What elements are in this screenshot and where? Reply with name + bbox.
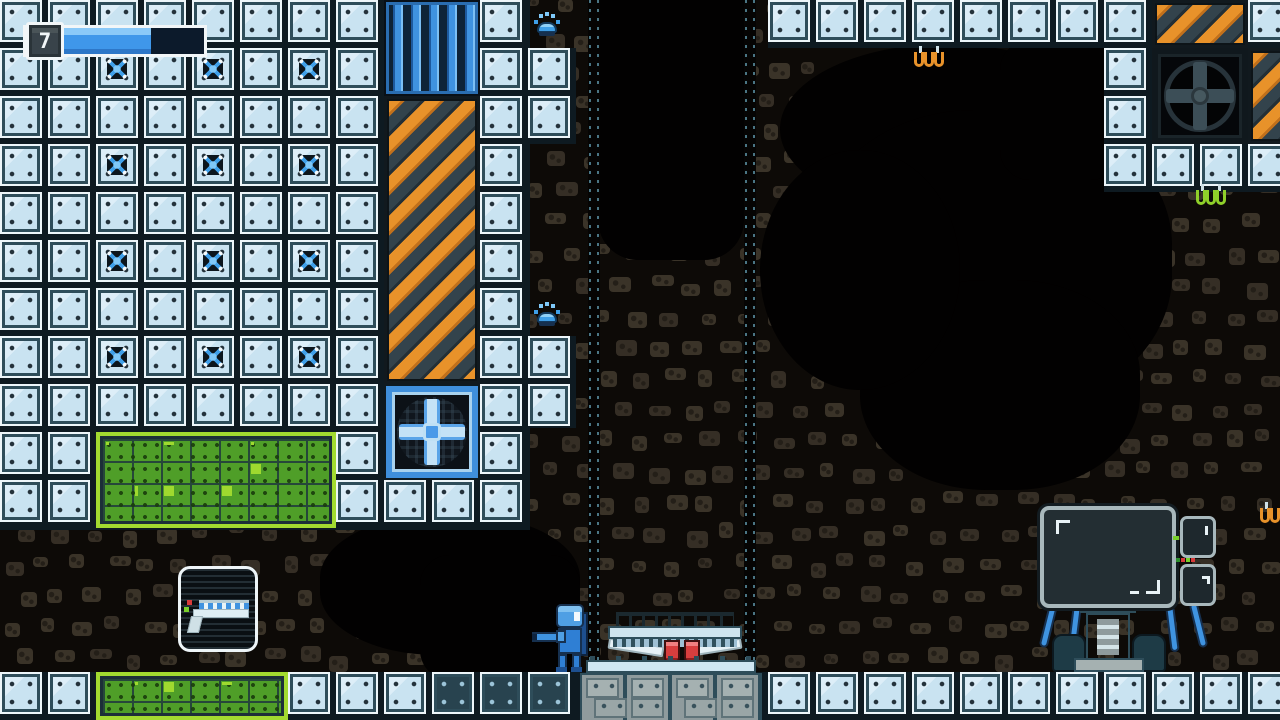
coil-creature[interactable] bbox=[1258, 502, 1280, 526]
coil-loop bbox=[1196, 190, 1206, 205]
entity-layer bbox=[0, 0, 1280, 720]
machine-panel bbox=[594, 698, 627, 718]
bug-enemy[interactable] bbox=[534, 302, 560, 326]
bug-spark bbox=[545, 302, 549, 306]
player-foot bbox=[556, 667, 567, 672]
bottom-machine bbox=[580, 656, 762, 720]
gun-icon-pixel-red bbox=[187, 600, 192, 605]
monitor-side-box bbox=[1180, 516, 1216, 558]
gun-icon-pixel-green bbox=[184, 607, 189, 612]
coil-loop bbox=[1216, 190, 1226, 205]
gun-icon-grip bbox=[187, 616, 203, 633]
bug-spark bbox=[534, 20, 538, 24]
bug-spark bbox=[539, 304, 543, 308]
monitor-side-box bbox=[1180, 564, 1216, 606]
game-viewport[interactable]: 7 bbox=[0, 0, 1280, 720]
player-visor bbox=[574, 612, 580, 621]
coil-creature[interactable] bbox=[912, 46, 946, 70]
screen-dash bbox=[1130, 591, 1139, 594]
machine-panel bbox=[721, 698, 754, 718]
monitor-robot[interactable] bbox=[1040, 506, 1216, 672]
connector-pixel bbox=[1191, 558, 1195, 562]
coil-loop bbox=[1260, 508, 1270, 523]
coil-loop bbox=[1206, 190, 1216, 205]
monitor-screen bbox=[1040, 506, 1176, 608]
bug-spark bbox=[534, 310, 538, 314]
bug-spark bbox=[545, 12, 549, 16]
hud-level-badge: 7 bbox=[26, 22, 64, 60]
bug-spark bbox=[556, 20, 560, 24]
walker-slab bbox=[608, 626, 742, 639]
machine-panel bbox=[676, 678, 709, 698]
connector-pixel bbox=[1173, 536, 1179, 540]
coil-loop bbox=[924, 52, 934, 67]
side-box-tick bbox=[1205, 526, 1208, 535]
connector-pixel bbox=[1176, 558, 1180, 562]
weapon-pickup-box[interactable] bbox=[178, 566, 258, 652]
bug-spark bbox=[556, 310, 560, 314]
coil-loop bbox=[934, 52, 944, 67]
bug-enemy[interactable] bbox=[534, 12, 560, 36]
player-hand bbox=[556, 630, 566, 643]
coil-loop bbox=[914, 52, 924, 67]
machine-panel bbox=[721, 678, 754, 698]
coil-creature[interactable] bbox=[1194, 184, 1228, 208]
walker-rail-posts bbox=[616, 612, 734, 627]
bug-base bbox=[539, 32, 555, 36]
screen-bracket bbox=[1056, 520, 1059, 534]
coil-loop bbox=[1270, 508, 1280, 523]
bug-spark bbox=[551, 304, 555, 308]
bug-spark bbox=[539, 14, 543, 18]
bug-spark bbox=[551, 14, 555, 18]
player-gun-muzzle bbox=[532, 634, 537, 640]
bug-base bbox=[539, 322, 555, 326]
monitor-pedestal-base bbox=[1074, 658, 1144, 672]
connector-pixel bbox=[1186, 558, 1190, 562]
screen-bracket bbox=[1157, 580, 1160, 594]
machine-panel bbox=[586, 678, 619, 698]
machine-top-slab bbox=[586, 660, 756, 673]
gun-icon-top bbox=[199, 600, 249, 603]
hud: 7 bbox=[26, 22, 256, 66]
monitor-cable bbox=[1165, 606, 1180, 653]
machine-panel bbox=[631, 678, 664, 698]
machine-panel bbox=[631, 698, 664, 718]
gun-icon-stripe bbox=[199, 603, 249, 609]
monitor-pedestal-column bbox=[1086, 613, 1130, 661]
machine-panel bbox=[684, 698, 717, 718]
side-box-tick bbox=[1207, 576, 1210, 584]
monitor-cable bbox=[1189, 602, 1209, 649]
connector-pixel bbox=[1181, 558, 1185, 562]
hud-level-value: 7 bbox=[39, 29, 52, 53]
